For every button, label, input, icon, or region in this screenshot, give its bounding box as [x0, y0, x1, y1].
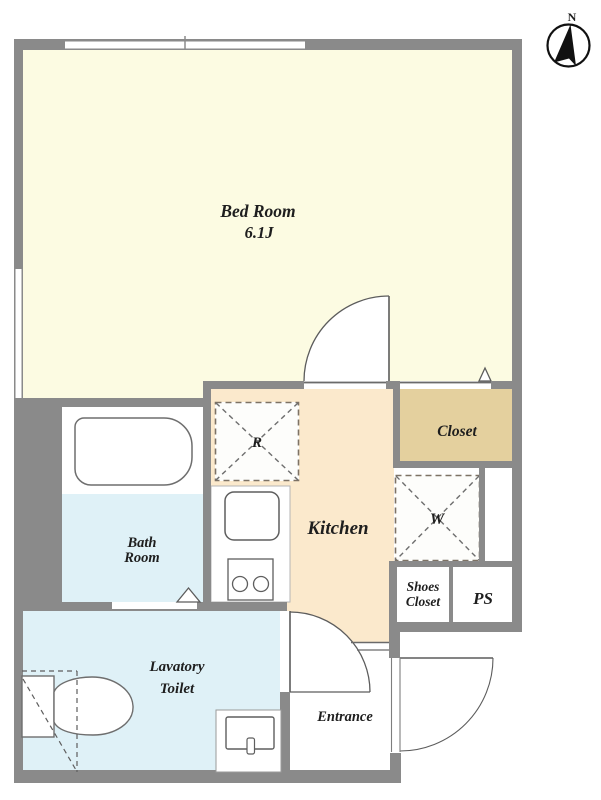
svg-text:Bed Room: Bed Room	[219, 201, 295, 221]
svg-text:Bath: Bath	[126, 535, 156, 551]
svg-text:6.1J: 6.1J	[245, 223, 275, 242]
svg-text:R: R	[251, 435, 262, 451]
svg-text:W: W	[430, 511, 446, 528]
svg-text:Closet: Closet	[406, 594, 442, 609]
svg-text:N: N	[568, 10, 577, 24]
svg-text:Shoes: Shoes	[407, 579, 440, 594]
svg-text:PS: PS	[472, 589, 493, 608]
svg-text:Kitchen: Kitchen	[306, 518, 368, 539]
svg-text:Room: Room	[123, 550, 159, 566]
svg-text:Toilet: Toilet	[160, 681, 195, 697]
svg-text:Closet: Closet	[437, 423, 477, 440]
svg-text:Lavatory: Lavatory	[149, 659, 205, 675]
svg-text:Entrance: Entrance	[316, 709, 373, 725]
